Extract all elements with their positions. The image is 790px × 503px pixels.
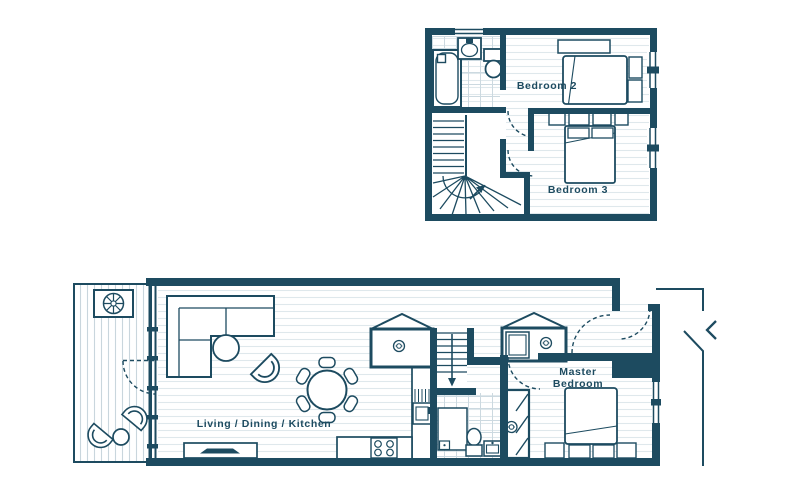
- window-icon: [647, 128, 659, 168]
- window-icon: [651, 382, 661, 423]
- bedside-table-icon: [545, 443, 564, 458]
- bathtub-icon: [433, 50, 461, 107]
- terrace-table-icon: [113, 429, 129, 445]
- pillow-icon: [593, 445, 614, 458]
- pillow-icon: [568, 128, 589, 138]
- terrace-planter-icon: [94, 290, 133, 317]
- appliance-tag-icon: [394, 341, 405, 352]
- bedroom2-label: Bedroom 2: [517, 80, 577, 92]
- entrance-outline: [656, 289, 716, 466]
- ground-floor-plan: Living / Dining / Kitchen Master Bedroom: [74, 278, 716, 466]
- appliance-tag-icon: [541, 338, 552, 349]
- floorplan-page: Bedroom 2 Bedroom 3: [0, 0, 790, 503]
- pillow-icon: [569, 445, 590, 458]
- shower-icon: [438, 408, 467, 450]
- dining-chair-icon: [319, 358, 335, 368]
- bedroom3-label: Bedroom 3: [548, 184, 608, 196]
- bedside-table-icon: [628, 80, 642, 102]
- window-icon: [647, 52, 659, 88]
- dining-table-icon: [308, 371, 347, 410]
- bedside-table-icon: [617, 443, 636, 458]
- shelf-icon: [558, 40, 610, 53]
- floorplan-drawing: Bedroom 2 Bedroom 3: [0, 0, 790, 503]
- sliding-door-icon: [147, 286, 158, 458]
- terrace: [74, 284, 152, 462]
- window-icon: [455, 27, 483, 36]
- coffee-table-icon: [213, 335, 239, 361]
- entrance-chevron-icon: [707, 321, 716, 339]
- basin-icon: [484, 441, 501, 456]
- master-bedroom-label-line2: Bedroom: [553, 378, 603, 390]
- tv-sideboard-icon: [184, 443, 257, 458]
- pillow-icon: [629, 57, 642, 78]
- living-dining-kitchen-label: Living / Dining / Kitchen: [197, 418, 332, 430]
- basin-icon: [458, 38, 481, 59]
- wardrobe-icon: [506, 390, 529, 458]
- entry-recess: [616, 286, 652, 304]
- hob-icon: [371, 438, 397, 458]
- master-bedroom-label-line1: Master: [559, 366, 596, 378]
- pillow-icon: [592, 128, 613, 138]
- toilet-icon: [466, 429, 482, 457]
- upper-floor-plan: Bedroom 2 Bedroom 3: [429, 27, 660, 218]
